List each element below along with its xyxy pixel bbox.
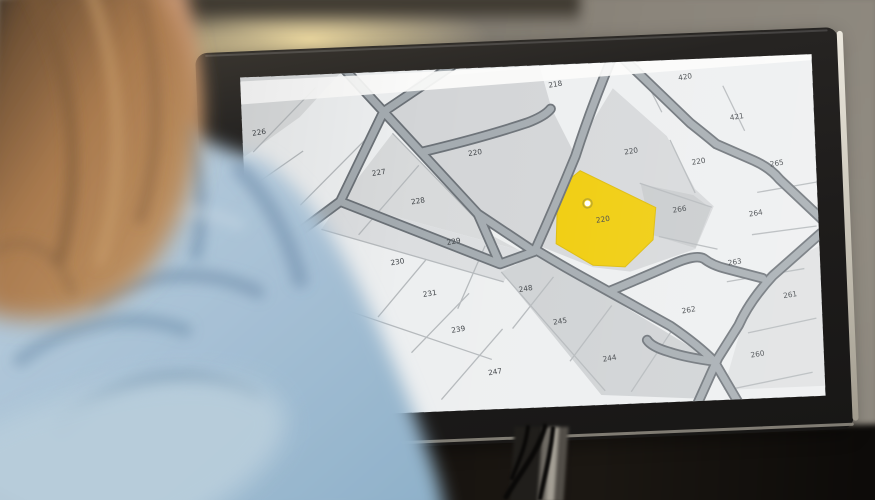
monitor-screen: 2262272282292302312392472482452442182204… [240,54,826,419]
monitor: 2262272282292302312392472482452442182204… [195,27,854,455]
photo-scene: 2262272282292302312392472482452442182204… [0,0,875,500]
cadastral-map[interactable]: 2262272282292302312392472482452442182204… [240,54,826,419]
monitor-stand [509,427,568,500]
ceiling-shadow [140,0,580,26]
